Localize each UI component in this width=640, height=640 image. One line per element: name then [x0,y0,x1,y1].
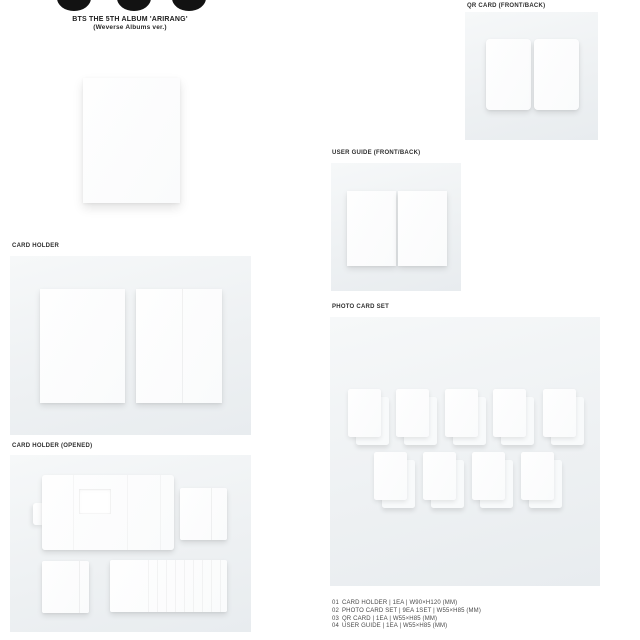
card-holder-window-cutout [79,489,111,514]
section-label-card-holder-opened: CARD HOLDER (OPENED) [12,443,92,450]
logo-dot-icon [57,0,91,11]
spec-item-number: 04 [332,623,339,631]
qr-card-panel [465,12,598,140]
photo-card-pair [493,389,534,445]
card-fan-stack-mockup [110,560,227,612]
spec-item: 01 CARD HOLDER | 1EA | W90×H120 (MM) [332,600,481,608]
product-spec-sheet: BTS THE 5TH ALBUM 'ARIRANG' (Weverse Alb… [0,0,640,640]
photo-card-set-panel [330,317,600,586]
user-guide-panel [331,163,461,291]
spec-item-text: QR CARD | 1EA | W55×H85 (MM) [342,616,437,624]
section-label-qr-card: QR CARD (FRONT/BACK) [467,3,545,10]
qr-card-back-mockup [534,39,579,110]
photo-card-front [493,389,526,437]
spec-item: 02 PHOTO CARD SET | 9EA 1SET | W55×H85 (… [332,608,481,616]
photo-card-pair [472,452,513,508]
fold-crease [211,488,212,540]
card-holder-folded-mockup [180,488,227,540]
photo-card-front [396,389,429,437]
photo-card-pair [521,452,562,508]
photo-card-front [423,452,456,500]
logo-dot-icon [172,0,206,11]
photo-card-front [543,389,576,437]
album-version-subtitle: (Weverse Albums ver.) [30,24,230,32]
photo-card-pair [396,389,437,445]
photo-card-front [472,452,505,500]
photo-card-front [445,389,478,437]
card-holder-unfolded-mockup [42,475,174,550]
fold-crease [160,475,161,550]
fold-crease [127,475,128,550]
photo-card-front [521,452,554,500]
photo-card-pair [374,452,415,508]
photo-card-pair [348,389,389,445]
user-guide-front-mockup [347,191,396,266]
photo-card-front [374,452,407,500]
section-label-card-holder: CARD HOLDER [12,243,59,250]
spec-item-number: 01 [332,600,339,608]
spec-item: 03 QR CARD | 1EA | W55×H85 (MM) [332,616,481,624]
fold-crease [182,289,183,403]
photo-card-pair [445,389,486,445]
component-spec-list: 01 CARD HOLDER | 1EA | W90×H120 (MM) 02 … [332,600,481,631]
album-cover-closed-mockup [83,78,180,203]
photo-card-pair [543,389,584,445]
logo-dot-icon [117,0,151,11]
spec-item-text: USER GUIDE | 1EA | W55×H85 (MM) [342,623,447,631]
user-guide-back-mockup [398,191,447,266]
fold-crease [79,561,80,613]
photo-card-pair [423,452,464,508]
section-label-user-guide: USER GUIDE (FRONT/BACK) [332,150,420,157]
spec-item-text: PHOTO CARD SET | 9EA 1SET | W55×H85 (MM) [342,608,481,616]
photo-card-front [348,389,381,437]
card-holder-opened-panel [10,455,251,632]
card-holder-panel [10,256,251,435]
card-holder-back-mockup [136,289,222,403]
sleeve-card-mockup [42,561,89,613]
fold-crease [73,475,74,550]
spec-item: 04 USER GUIDE | 1EA | W55×H85 (MM) [332,623,481,631]
album-title: BTS THE 5TH ALBUM 'ARIRANG' [30,15,230,24]
spec-item-text: CARD HOLDER | 1EA | W90×H120 (MM) [342,600,457,608]
section-label-photo-card-set: PHOTO CARD SET [332,304,389,311]
spec-item-number: 03 [332,616,339,624]
spec-item-number: 02 [332,608,339,616]
card-holder-front-mockup [40,289,125,403]
qr-card-front-mockup [486,39,531,110]
